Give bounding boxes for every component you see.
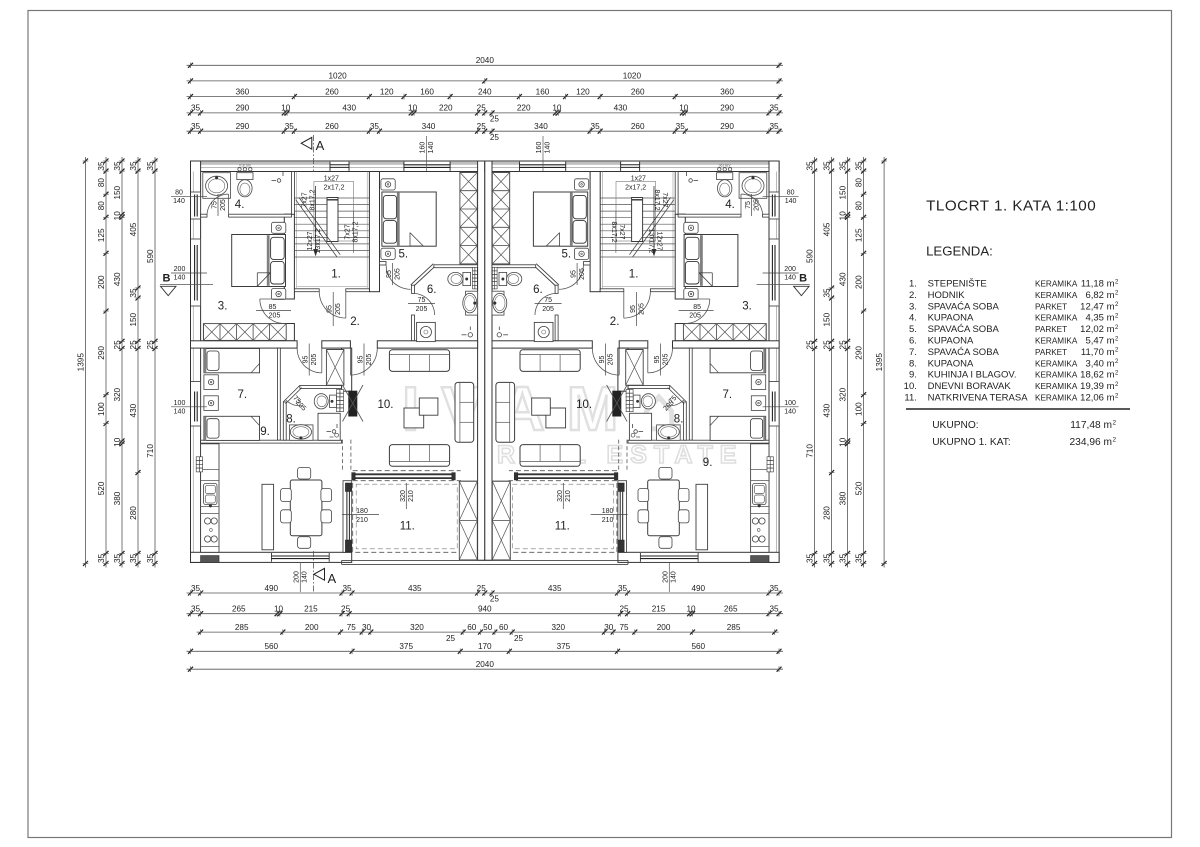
svg-text:150: 150 xyxy=(822,312,831,326)
svg-text:25: 25 xyxy=(490,595,500,604)
svg-text:10: 10 xyxy=(408,104,418,113)
svg-text:DNEVNI BORAVAK: DNEVNI BORAVAK xyxy=(928,381,1012,392)
svg-text:10: 10 xyxy=(281,104,291,113)
svg-text:205: 205 xyxy=(689,313,701,320)
svg-text:290: 290 xyxy=(236,104,250,113)
svg-text:590: 590 xyxy=(146,249,155,263)
svg-text:280: 280 xyxy=(822,506,831,520)
svg-text:KERAMIKA: KERAMIKA xyxy=(1035,394,1078,403)
svg-text:234,96 m: 234,96 m xyxy=(1070,437,1112,448)
svg-text:35: 35 xyxy=(854,553,863,563)
svg-text:KUPAONA: KUPAONA xyxy=(928,358,974,369)
svg-text:35: 35 xyxy=(113,161,122,171)
svg-text:1x27: 1x27 xyxy=(631,176,646,183)
svg-text:35: 35 xyxy=(618,584,628,593)
svg-text:35: 35 xyxy=(146,553,155,563)
svg-text:170: 170 xyxy=(478,642,492,651)
svg-text:320: 320 xyxy=(410,623,424,632)
svg-text:5.: 5. xyxy=(399,249,409,261)
svg-text:4,35 m: 4,35 m xyxy=(1085,313,1114,324)
svg-text:11.: 11. xyxy=(400,521,415,533)
svg-text:117,48 m: 117,48 m xyxy=(1070,420,1112,431)
svg-text:KUPAONA: KUPAONA xyxy=(928,336,974,347)
svg-text:380: 380 xyxy=(838,491,847,505)
svg-text:2: 2 xyxy=(1113,436,1117,443)
svg-text:5.: 5. xyxy=(562,249,572,261)
svg-text:25: 25 xyxy=(113,340,122,350)
svg-text:35: 35 xyxy=(191,605,201,614)
svg-text:140: 140 xyxy=(544,142,551,154)
svg-text:A: A xyxy=(327,571,336,586)
svg-text:430: 430 xyxy=(822,403,831,417)
svg-text:290: 290 xyxy=(97,346,106,360)
svg-text:3.: 3. xyxy=(218,301,228,313)
svg-text:35: 35 xyxy=(342,584,352,593)
svg-text:LEGENDA:: LEGENDA: xyxy=(926,244,993,259)
svg-text:7x27: 7x27 xyxy=(345,224,352,239)
svg-text:265: 265 xyxy=(232,605,246,614)
svg-text:11,70 m: 11,70 m xyxy=(1081,347,1115,358)
svg-text:125: 125 xyxy=(97,228,106,242)
svg-text:KERAMIKA: KERAMIKA xyxy=(1035,382,1078,391)
svg-text:290: 290 xyxy=(720,122,734,131)
svg-text:1020: 1020 xyxy=(328,72,347,81)
svg-text:KERAMIKA: KERAMIKA xyxy=(1035,291,1078,300)
svg-text:UKUPNO:: UKUPNO: xyxy=(932,420,978,431)
svg-text:430: 430 xyxy=(342,104,356,113)
svg-text:35: 35 xyxy=(822,161,831,171)
svg-text:35: 35 xyxy=(769,584,779,593)
svg-text:290: 290 xyxy=(720,104,734,113)
svg-text:6.: 6. xyxy=(427,284,437,296)
svg-text:13x17,2: 13x17,2 xyxy=(648,229,655,254)
svg-text:340: 340 xyxy=(534,122,548,131)
svg-text:120: 120 xyxy=(576,87,590,96)
svg-text:85: 85 xyxy=(269,304,277,311)
svg-text:140: 140 xyxy=(428,142,435,154)
svg-text:10.: 10. xyxy=(378,399,394,411)
svg-text:35: 35 xyxy=(285,122,295,131)
svg-text:590: 590 xyxy=(805,249,814,263)
svg-text:KUHINJA I BLAGOV.: KUHINJA I BLAGOV. xyxy=(928,370,1017,381)
svg-text:30: 30 xyxy=(362,623,372,632)
svg-text:2040: 2040 xyxy=(476,660,495,669)
svg-text:160: 160 xyxy=(536,87,550,96)
svg-text:35: 35 xyxy=(191,584,201,593)
svg-text:25: 25 xyxy=(446,634,456,643)
svg-text:35: 35 xyxy=(129,288,138,298)
svg-text:B: B xyxy=(163,273,171,285)
svg-text:10: 10 xyxy=(679,104,689,113)
svg-text:4.: 4. xyxy=(235,199,245,211)
svg-text:3.: 3. xyxy=(909,301,917,312)
svg-text:180: 180 xyxy=(602,508,614,515)
svg-text:B: B xyxy=(799,273,807,285)
svg-text:265: 265 xyxy=(724,605,738,614)
svg-text:100: 100 xyxy=(854,402,863,416)
svg-text:10: 10 xyxy=(838,211,847,221)
svg-text:2: 2 xyxy=(1115,336,1119,342)
svg-text:320: 320 xyxy=(551,623,565,632)
svg-text:2x17,2: 2x17,2 xyxy=(323,185,344,192)
svg-text:4.: 4. xyxy=(909,313,917,324)
svg-text:7x27: 7x27 xyxy=(661,192,668,207)
svg-text:405: 405 xyxy=(129,222,138,236)
svg-text:HODNIK: HODNIK xyxy=(928,290,966,301)
svg-text:4.: 4. xyxy=(725,199,735,211)
svg-text:25: 25 xyxy=(619,605,629,614)
svg-text:6,82 m: 6,82 m xyxy=(1085,290,1114,301)
svg-text:SPAVAĆA SOBA: SPAVAĆA SOBA xyxy=(928,347,1000,358)
svg-text:2x17,2: 2x17,2 xyxy=(625,185,646,192)
svg-text:560: 560 xyxy=(264,642,278,651)
svg-text:210: 210 xyxy=(408,490,415,502)
svg-text:215: 215 xyxy=(304,605,318,614)
svg-text:290: 290 xyxy=(236,122,250,131)
svg-text:25: 25 xyxy=(490,133,500,142)
svg-text:8.: 8. xyxy=(909,358,917,369)
svg-text:2: 2 xyxy=(1115,359,1119,365)
svg-text:200: 200 xyxy=(97,275,106,289)
svg-text:35: 35 xyxy=(191,104,201,113)
svg-text:11,18 m: 11,18 m xyxy=(1081,279,1115,290)
svg-text:205: 205 xyxy=(662,354,669,366)
svg-text:340: 340 xyxy=(422,122,436,131)
svg-text:PARKET: PARKET xyxy=(1035,302,1067,311)
svg-text:430: 430 xyxy=(838,272,847,286)
svg-text:11.: 11. xyxy=(904,393,917,404)
svg-text:320: 320 xyxy=(113,387,122,401)
svg-text:210: 210 xyxy=(602,517,614,524)
svg-text:2: 2 xyxy=(1115,279,1119,285)
svg-text:210: 210 xyxy=(565,490,572,502)
svg-text:520: 520 xyxy=(854,481,863,495)
svg-text:80: 80 xyxy=(97,178,106,188)
svg-text:10: 10 xyxy=(113,211,122,221)
svg-text:490: 490 xyxy=(264,584,278,593)
svg-text:10: 10 xyxy=(113,437,122,447)
svg-text:260: 260 xyxy=(631,122,645,131)
svg-text:KERAMIKA: KERAMIKA xyxy=(1035,359,1078,368)
svg-text:50: 50 xyxy=(483,623,493,632)
svg-text:19,39 m: 19,39 m xyxy=(1080,381,1114,392)
svg-text:35: 35 xyxy=(822,288,831,298)
svg-text:430: 430 xyxy=(129,403,138,417)
svg-text:160: 160 xyxy=(536,142,543,154)
svg-text:95: 95 xyxy=(599,356,606,364)
svg-text:80: 80 xyxy=(854,178,863,188)
svg-text:8.: 8. xyxy=(674,414,684,426)
svg-text:25: 25 xyxy=(514,634,524,643)
svg-text:205: 205 xyxy=(754,199,761,211)
svg-text:260: 260 xyxy=(325,122,339,131)
svg-text:290: 290 xyxy=(854,346,863,360)
svg-text:140: 140 xyxy=(174,408,186,415)
svg-text:2: 2 xyxy=(1115,302,1119,308)
svg-text:25: 25 xyxy=(477,104,487,113)
svg-text:360: 360 xyxy=(720,87,734,96)
svg-text:75: 75 xyxy=(347,623,357,632)
svg-text:1.: 1. xyxy=(331,269,341,281)
svg-text:80: 80 xyxy=(854,201,863,211)
svg-text:35: 35 xyxy=(769,605,779,614)
svg-text:2: 2 xyxy=(1115,382,1119,388)
svg-text:12x27: 12x27 xyxy=(307,231,314,250)
svg-text:3,40 m: 3,40 m xyxy=(1085,358,1114,369)
svg-text:95: 95 xyxy=(327,305,334,313)
svg-text:8.: 8. xyxy=(286,414,296,426)
svg-text:180: 180 xyxy=(356,508,368,515)
svg-text:35: 35 xyxy=(805,161,814,171)
svg-text:150: 150 xyxy=(838,185,847,199)
svg-text:10: 10 xyxy=(274,605,284,614)
svg-text:2: 2 xyxy=(1115,325,1119,331)
svg-text:200: 200 xyxy=(174,266,186,273)
svg-text:KERAMIKA: KERAMIKA xyxy=(1035,337,1078,346)
svg-text:35: 35 xyxy=(769,104,779,113)
svg-text:KERAMIKA: KERAMIKA xyxy=(1035,371,1078,380)
svg-text:1.: 1. xyxy=(629,269,639,281)
svg-text:7.: 7. xyxy=(238,389,248,401)
svg-text:10.: 10. xyxy=(576,399,592,411)
svg-text:140: 140 xyxy=(784,275,796,282)
svg-text:205: 205 xyxy=(579,268,586,280)
svg-text:35: 35 xyxy=(146,161,155,171)
svg-text:150: 150 xyxy=(113,185,122,199)
svg-text:560: 560 xyxy=(691,642,705,651)
svg-text:100: 100 xyxy=(174,400,186,407)
svg-text:35: 35 xyxy=(113,553,122,563)
svg-text:9.: 9. xyxy=(703,457,713,469)
svg-text:5,47 m: 5,47 m xyxy=(1085,336,1114,347)
svg-text:35: 35 xyxy=(676,122,686,131)
svg-text:140: 140 xyxy=(173,198,185,205)
svg-text:320: 320 xyxy=(400,490,407,502)
svg-text:6.: 6. xyxy=(533,284,543,296)
svg-text:8x17,2: 8x17,2 xyxy=(610,221,617,242)
svg-text:205: 205 xyxy=(220,199,227,211)
svg-text:2: 2 xyxy=(1115,371,1119,377)
svg-text:KERAMIKA: KERAMIKA xyxy=(1035,314,1078,323)
svg-text:18,62 m: 18,62 m xyxy=(1080,370,1114,381)
svg-text:95: 95 xyxy=(571,270,578,278)
svg-text:710: 710 xyxy=(146,444,155,458)
svg-text:205: 205 xyxy=(542,306,554,313)
svg-text:285: 285 xyxy=(727,623,741,632)
svg-text:25: 25 xyxy=(822,340,831,350)
svg-text:35: 35 xyxy=(97,161,106,171)
svg-text:9.: 9. xyxy=(909,370,917,381)
svg-text:2.: 2. xyxy=(610,316,620,328)
svg-text:STEPENIŠTE: STEPENIŠTE xyxy=(928,279,987,290)
svg-text:200: 200 xyxy=(662,571,669,583)
svg-text:220: 220 xyxy=(517,104,531,113)
svg-text:SPAVAĆA SOBA: SPAVAĆA SOBA xyxy=(928,324,1000,335)
svg-text:260: 260 xyxy=(631,87,645,96)
svg-text:2: 2 xyxy=(1115,314,1119,320)
svg-text:120: 120 xyxy=(380,87,394,96)
svg-text:8x17,2: 8x17,2 xyxy=(310,189,317,210)
svg-text:205: 205 xyxy=(638,303,645,315)
svg-text:220: 220 xyxy=(439,104,453,113)
svg-text:5.: 5. xyxy=(909,324,917,335)
svg-text:35: 35 xyxy=(370,122,380,131)
svg-text:140: 140 xyxy=(174,275,186,282)
svg-text:35: 35 xyxy=(97,553,106,563)
svg-text:2.: 2. xyxy=(909,290,917,301)
svg-text:8x17,2: 8x17,2 xyxy=(653,189,660,210)
svg-text:140: 140 xyxy=(302,571,309,583)
svg-text:PARKET: PARKET xyxy=(1035,348,1067,357)
svg-text:215: 215 xyxy=(652,605,666,614)
svg-text:12,47 m: 12,47 m xyxy=(1080,301,1114,312)
svg-text:85: 85 xyxy=(693,304,701,311)
svg-text:210: 210 xyxy=(356,517,368,524)
svg-text:95: 95 xyxy=(630,305,637,313)
svg-text:125: 125 xyxy=(854,228,863,242)
svg-text:205: 205 xyxy=(394,268,401,280)
svg-text:95: 95 xyxy=(303,356,310,364)
svg-text:200: 200 xyxy=(784,266,796,273)
svg-text:320: 320 xyxy=(838,387,847,401)
svg-text:2040: 2040 xyxy=(476,56,495,65)
svg-text:375: 375 xyxy=(399,642,413,651)
svg-text:12,06 m: 12,06 m xyxy=(1080,393,1114,404)
svg-text:35: 35 xyxy=(191,122,201,131)
svg-text:35: 35 xyxy=(838,553,847,563)
svg-text:520: 520 xyxy=(97,481,106,495)
svg-text:205: 205 xyxy=(366,354,373,366)
svg-text:380: 380 xyxy=(113,491,122,505)
svg-text:KUPAONA: KUPAONA xyxy=(928,313,974,324)
svg-text:80: 80 xyxy=(787,190,795,197)
svg-text:25: 25 xyxy=(146,340,155,350)
svg-text:80: 80 xyxy=(97,201,106,211)
svg-text:7x27: 7x27 xyxy=(618,224,625,239)
svg-text:75: 75 xyxy=(745,201,752,209)
svg-text:205: 205 xyxy=(608,354,615,366)
svg-text:205: 205 xyxy=(294,399,307,412)
svg-text:8x17,2: 8x17,2 xyxy=(353,221,360,242)
svg-text:35: 35 xyxy=(129,161,138,171)
svg-text:430: 430 xyxy=(614,104,628,113)
svg-text:75: 75 xyxy=(619,623,629,632)
svg-text:6.: 6. xyxy=(909,336,917,347)
svg-text:1395: 1395 xyxy=(76,353,85,372)
svg-text:285: 285 xyxy=(235,623,249,632)
svg-text:60: 60 xyxy=(499,623,509,632)
svg-text:205: 205 xyxy=(416,306,428,313)
svg-text:12,02 m: 12,02 m xyxy=(1080,324,1114,335)
svg-text:430: 430 xyxy=(113,272,122,286)
svg-text:280: 280 xyxy=(129,506,138,520)
svg-text:35: 35 xyxy=(805,553,814,563)
svg-text:75: 75 xyxy=(212,201,219,209)
svg-text:35: 35 xyxy=(129,553,138,563)
svg-text:7.: 7. xyxy=(723,389,733,401)
svg-text:V18 160: V18 160 xyxy=(239,164,251,168)
svg-text:205: 205 xyxy=(269,313,281,320)
svg-text:25: 25 xyxy=(477,122,487,131)
svg-text:1x27: 1x27 xyxy=(324,176,339,183)
svg-text:KERAMIKA: KERAMIKA xyxy=(1035,280,1078,289)
svg-text:11.: 11. xyxy=(555,521,570,533)
svg-text:2: 2 xyxy=(1115,348,1119,354)
svg-text:TLOCRT 1. KATA 1:100: TLOCRT 1. KATA 1:100 xyxy=(926,198,1096,215)
svg-text:2.: 2. xyxy=(350,316,360,328)
svg-text:205: 205 xyxy=(311,354,318,366)
svg-text:940: 940 xyxy=(478,605,492,614)
svg-text:200: 200 xyxy=(293,571,300,583)
svg-text:375: 375 xyxy=(557,642,571,651)
svg-text:25: 25 xyxy=(490,115,500,124)
svg-text:2: 2 xyxy=(1113,420,1117,427)
svg-text:260: 260 xyxy=(325,87,339,96)
svg-text:10: 10 xyxy=(838,437,847,447)
svg-text:25: 25 xyxy=(838,340,847,350)
svg-text:7x27: 7x27 xyxy=(302,192,309,207)
svg-text:95: 95 xyxy=(358,356,365,364)
svg-text:PARKET: PARKET xyxy=(1035,325,1067,334)
svg-text:35: 35 xyxy=(822,553,831,563)
svg-text:25: 25 xyxy=(129,340,138,350)
svg-text:1020: 1020 xyxy=(623,72,642,81)
svg-text:7.: 7. xyxy=(909,347,917,358)
svg-text:100: 100 xyxy=(784,400,796,407)
svg-text:360: 360 xyxy=(236,87,250,96)
svg-text:9.: 9. xyxy=(260,426,270,438)
svg-text:95: 95 xyxy=(386,270,393,278)
svg-text:320: 320 xyxy=(557,490,564,502)
svg-text:35: 35 xyxy=(591,122,601,131)
svg-text:140: 140 xyxy=(784,408,796,415)
svg-text:100: 100 xyxy=(97,402,106,416)
svg-text:35: 35 xyxy=(854,161,863,171)
svg-text:12x27: 12x27 xyxy=(656,231,663,250)
svg-text:405: 405 xyxy=(822,222,831,236)
svg-text:200: 200 xyxy=(854,275,863,289)
svg-text:13x17,2: 13x17,2 xyxy=(315,228,322,253)
svg-text:95: 95 xyxy=(654,356,661,364)
svg-text:160: 160 xyxy=(420,142,427,154)
svg-text:710: 710 xyxy=(805,444,814,458)
svg-text:35: 35 xyxy=(769,122,779,131)
svg-text:200: 200 xyxy=(305,623,319,632)
svg-text:435: 435 xyxy=(548,584,562,593)
svg-text:75: 75 xyxy=(544,297,552,304)
svg-text:2: 2 xyxy=(1115,393,1119,399)
svg-text:490: 490 xyxy=(691,584,705,593)
svg-text:SPAVAĆA SOBA: SPAVAĆA SOBA xyxy=(928,301,1000,312)
svg-text:140: 140 xyxy=(671,571,678,583)
svg-text:UKUPNO 1. KAT:: UKUPNO 1. KAT: xyxy=(932,437,1011,448)
svg-text:140: 140 xyxy=(785,198,797,205)
svg-text:30: 30 xyxy=(604,623,614,632)
svg-text:NATKRIVENA TERASA: NATKRIVENA TERASA xyxy=(928,393,1029,404)
svg-text:240: 240 xyxy=(478,87,492,96)
svg-text:3.: 3. xyxy=(742,301,752,313)
svg-text:2: 2 xyxy=(1115,291,1119,297)
svg-text:1395: 1395 xyxy=(875,353,884,372)
svg-text:25: 25 xyxy=(341,605,351,614)
svg-text:160: 160 xyxy=(420,87,434,96)
svg-text:35: 35 xyxy=(838,161,847,171)
svg-text:80: 80 xyxy=(175,190,183,197)
svg-text:60: 60 xyxy=(467,623,477,632)
svg-text:A: A xyxy=(316,138,325,153)
svg-text:205: 205 xyxy=(335,303,342,315)
svg-text:25: 25 xyxy=(477,584,487,593)
